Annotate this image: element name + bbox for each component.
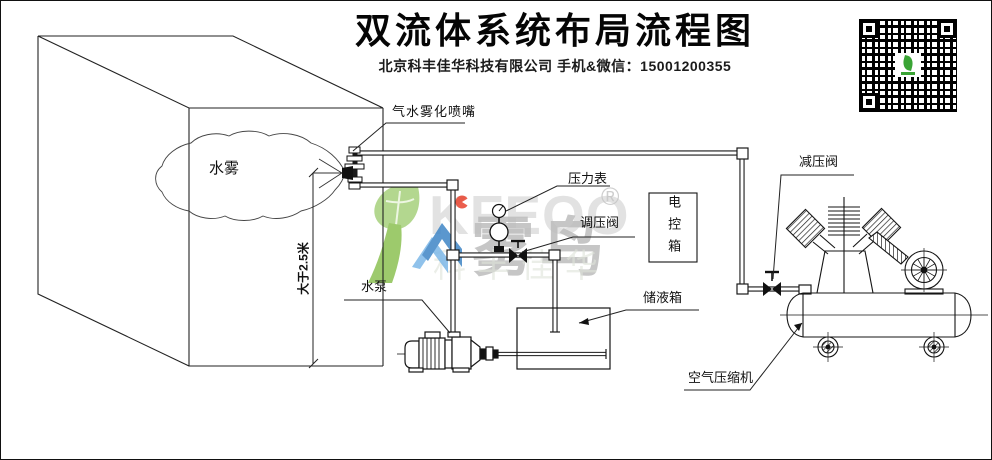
wechat-qr-code (857, 17, 959, 114)
flow-diagram-page: KFEOO 雾鸟 科丰佳华 ® (0, 0, 992, 460)
mist-cloud (156, 131, 345, 220)
qr-finder-top-right (938, 20, 956, 38)
motor-flywheel (901, 248, 947, 294)
atomizing-nozzle (313, 147, 364, 189)
water-pump-label: 水泵 (361, 280, 387, 294)
mist-label: 水雾 (209, 161, 239, 178)
water-pipe (357, 185, 453, 337)
reducing-valve-label: 减压阀 (799, 155, 838, 169)
qr-logo-text-bar (901, 72, 915, 75)
regulator-body (490, 223, 508, 241)
reducing-valve (763, 272, 781, 296)
arrow-compressor (794, 323, 802, 331)
spray-room-box (38, 36, 383, 366)
qr-finder-bottom-left (860, 93, 878, 111)
regulating-valve-label: 调压阀 (580, 216, 619, 230)
air-compressor-unit (780, 197, 988, 362)
pressure-gauge-label: 压力表 (568, 172, 607, 186)
company-contact-subtitle: 北京科丰佳华科技有限公司 手机&微信：15001200355 (333, 59, 777, 74)
nozzle-label: 气水雾化喷嘴 (392, 105, 476, 119)
qr-finder-top-left (860, 20, 878, 38)
crankcase (817, 251, 873, 293)
air-compressor-label: 空气压缩机 (688, 371, 753, 385)
leaf-icon (901, 54, 914, 70)
spray-lines (313, 159, 342, 188)
height-dimension-label: 大于2.5米 (298, 232, 311, 306)
cylinder-left (786, 209, 824, 247)
water-pump (397, 332, 498, 372)
pipe-fittings (447, 148, 811, 294)
storage-tank-label: 储液箱 (643, 291, 682, 305)
page-title: 双流体系统布局流程图 (333, 11, 777, 51)
regulating-valve (509, 241, 527, 263)
qr-center-logo (895, 53, 921, 77)
storage-tank-box (517, 308, 610, 369)
control-box-label: 电控箱 (649, 193, 697, 262)
bypass-pipe (453, 255, 555, 332)
arrow-storage-tank (579, 318, 589, 325)
pressure-gauge-assembly (490, 205, 508, 253)
